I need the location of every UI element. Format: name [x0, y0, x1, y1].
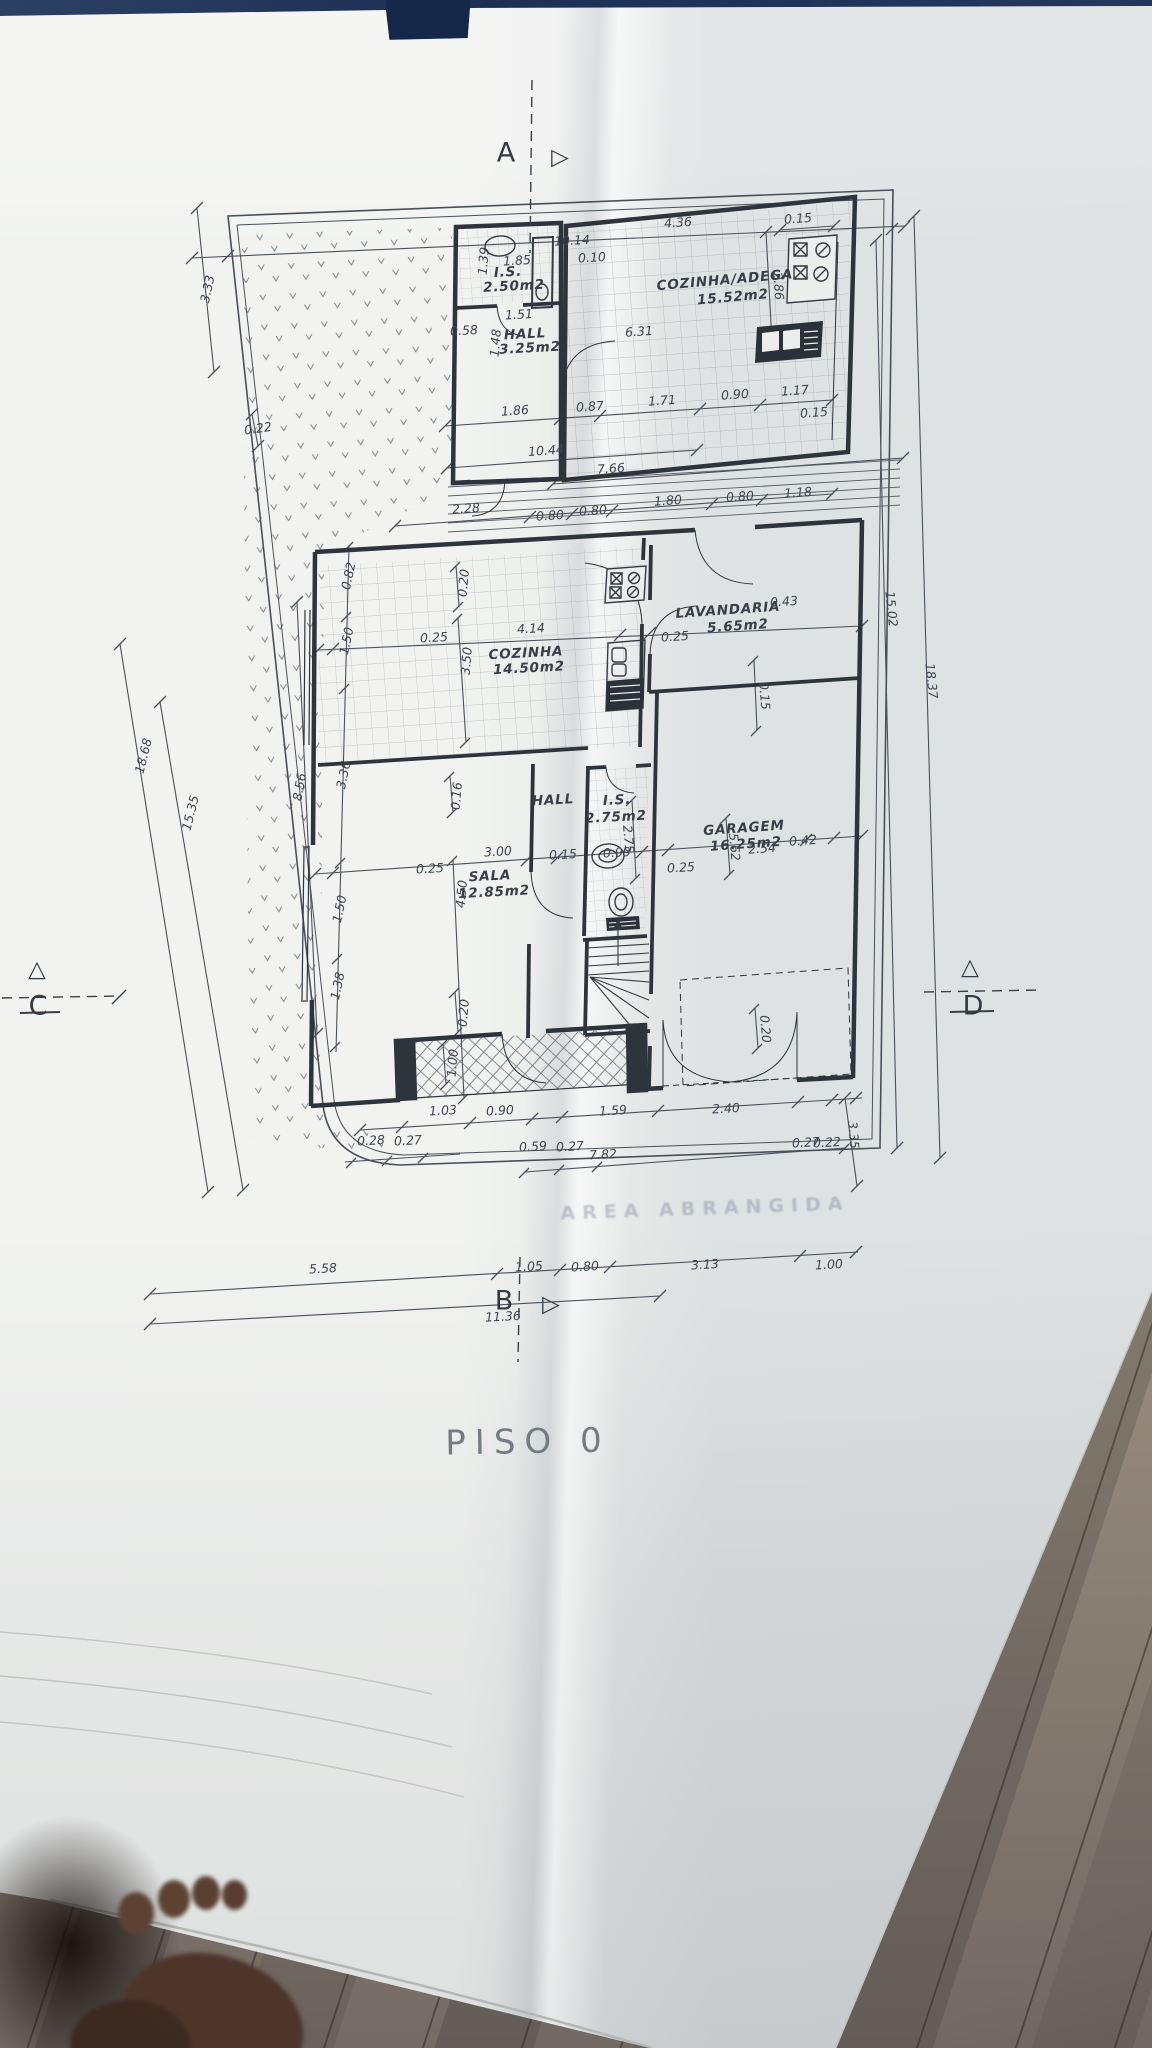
dimension-label: 0.82: [340, 561, 358, 591]
room-label: 15.52m2: [697, 288, 770, 308]
dimension-label: 5.58: [309, 1262, 337, 1276]
dimension-label: 1.51: [505, 308, 533, 322]
dimension-label: 0.43: [770, 595, 799, 609]
dimension-label: 1.03: [429, 1104, 457, 1118]
dimension-label: 3.35: [846, 1121, 861, 1150]
section-marker-letter: C: [29, 993, 48, 1020]
dimension-label: 4.36: [664, 216, 693, 230]
section-marker-letter: A: [497, 140, 515, 167]
dimension-label: 3.13: [691, 1258, 719, 1272]
dimension-label: 4.14: [517, 622, 545, 636]
dimension-label: 0.99: [603, 846, 631, 860]
dimension-label: 5.62: [727, 833, 742, 862]
dimension-label: 0.80: [571, 1260, 599, 1274]
dimension-label: 0.80: [536, 509, 565, 523]
dimension-label: 15.02: [883, 591, 899, 628]
dimension-label: 0.59: [519, 1140, 547, 1154]
room-label: 3.25m2: [499, 341, 561, 358]
dimension-label: 0.90: [721, 388, 750, 402]
dimension-label: 1.80: [654, 494, 683, 508]
section-marker-letter: B: [495, 1288, 514, 1315]
dimension-label: 15.35: [181, 794, 202, 832]
dimension-label: 0.25: [416, 862, 444, 876]
dimension-label: 0.27: [556, 1140, 584, 1154]
dimension-label: 1.50: [331, 894, 349, 924]
dimension-label: 1.00: [815, 1258, 843, 1272]
dimension-label: 0.58: [450, 324, 478, 338]
dimension-label: 1.18: [784, 486, 813, 500]
dimension-label: 18.68: [134, 737, 155, 775]
floor-title: PISO 0: [445, 1424, 611, 1461]
room-label: I.S.: [603, 794, 632, 809]
dimension-label: 2.40: [712, 1102, 740, 1116]
dimension-label: 0.25: [661, 630, 689, 644]
dimension-label: 1.71: [648, 394, 677, 408]
dimension-label: 0.22: [813, 1136, 841, 1150]
dimension-label: 1.38: [329, 971, 347, 1001]
room-label: SALA: [468, 869, 511, 885]
dimension-label: 2.54: [748, 842, 777, 856]
dimension-label: 3.33: [199, 274, 217, 304]
dimension-label: 0.20: [758, 1015, 773, 1044]
dimension-label: 0.28: [357, 1134, 385, 1148]
dimension-label: 1.86: [501, 404, 530, 418]
section-marker-icon: △: [28, 959, 46, 982]
dimension-label: 3.36: [335, 760, 353, 790]
dimension-label: 0.25: [420, 631, 448, 645]
dimension-label: 0.20: [457, 999, 472, 1028]
room-label: 14.50m2: [493, 660, 565, 677]
section-marker-icon: △: [961, 957, 979, 980]
dimension-label: 0.22: [243, 421, 272, 437]
room-label: HALL: [532, 793, 575, 809]
dimension-label: 0.27: [394, 1134, 422, 1148]
dimension-label: 1.39: [477, 247, 492, 276]
dimension-label: 0.80: [579, 504, 608, 518]
dimension-label: 1.00: [446, 1049, 461, 1078]
dimension-label: 3.00: [484, 845, 512, 859]
dimension-label: 0.16: [450, 782, 465, 811]
floor-plan-photo: 10.141.851.39I.S.2.50m20.101.511.480.58H…: [0, 0, 1152, 2048]
dimension-label: 10.14: [554, 234, 590, 248]
section-marker-icon: ▷: [542, 1294, 560, 1317]
dimension-label: 1.05: [515, 1260, 543, 1274]
dimension-label: 10.44: [528, 444, 565, 459]
dimension-label: 0.90: [486, 1104, 514, 1118]
dimension-label: 0.15: [549, 848, 577, 862]
background-notch: [386, 0, 470, 42]
dimension-label: 0.80: [726, 490, 755, 504]
dimension-label: 0.42: [789, 834, 818, 848]
dimension-label: 7.66: [597, 462, 626, 476]
dimension-label: 0.15: [757, 682, 772, 711]
dimension-label: 2.28: [452, 502, 481, 516]
dimension-label: 0.15: [784, 212, 813, 226]
dimension-label: 3.50: [460, 647, 475, 676]
dimension-label: 18.37: [923, 663, 939, 700]
dimension-label: 0.10: [578, 251, 606, 265]
dimension-label: 0.20: [457, 569, 472, 598]
dimension-label: 0.25: [667, 861, 695, 875]
section-marker-icon: ▷: [551, 147, 569, 170]
dimension-label: 1.17: [781, 384, 810, 398]
dimension-label: 0.87: [576, 400, 605, 414]
room-label: 2.50m2: [483, 279, 545, 296]
dimension-label: 1.50: [338, 626, 356, 656]
section-marker-letter: D: [963, 993, 984, 1020]
dimension-label: 6.31: [625, 325, 654, 339]
room-label: 2.75m2: [585, 810, 647, 827]
dimension-label: 1.59: [599, 1104, 627, 1118]
dimension-label: 4.50: [455, 880, 470, 909]
room-label: 5.65m2: [707, 618, 769, 636]
dimension-label: 7.82: [589, 1148, 617, 1162]
dimension-label: 8.56: [291, 772, 308, 802]
dimension-label: 0.15: [800, 406, 829, 420]
